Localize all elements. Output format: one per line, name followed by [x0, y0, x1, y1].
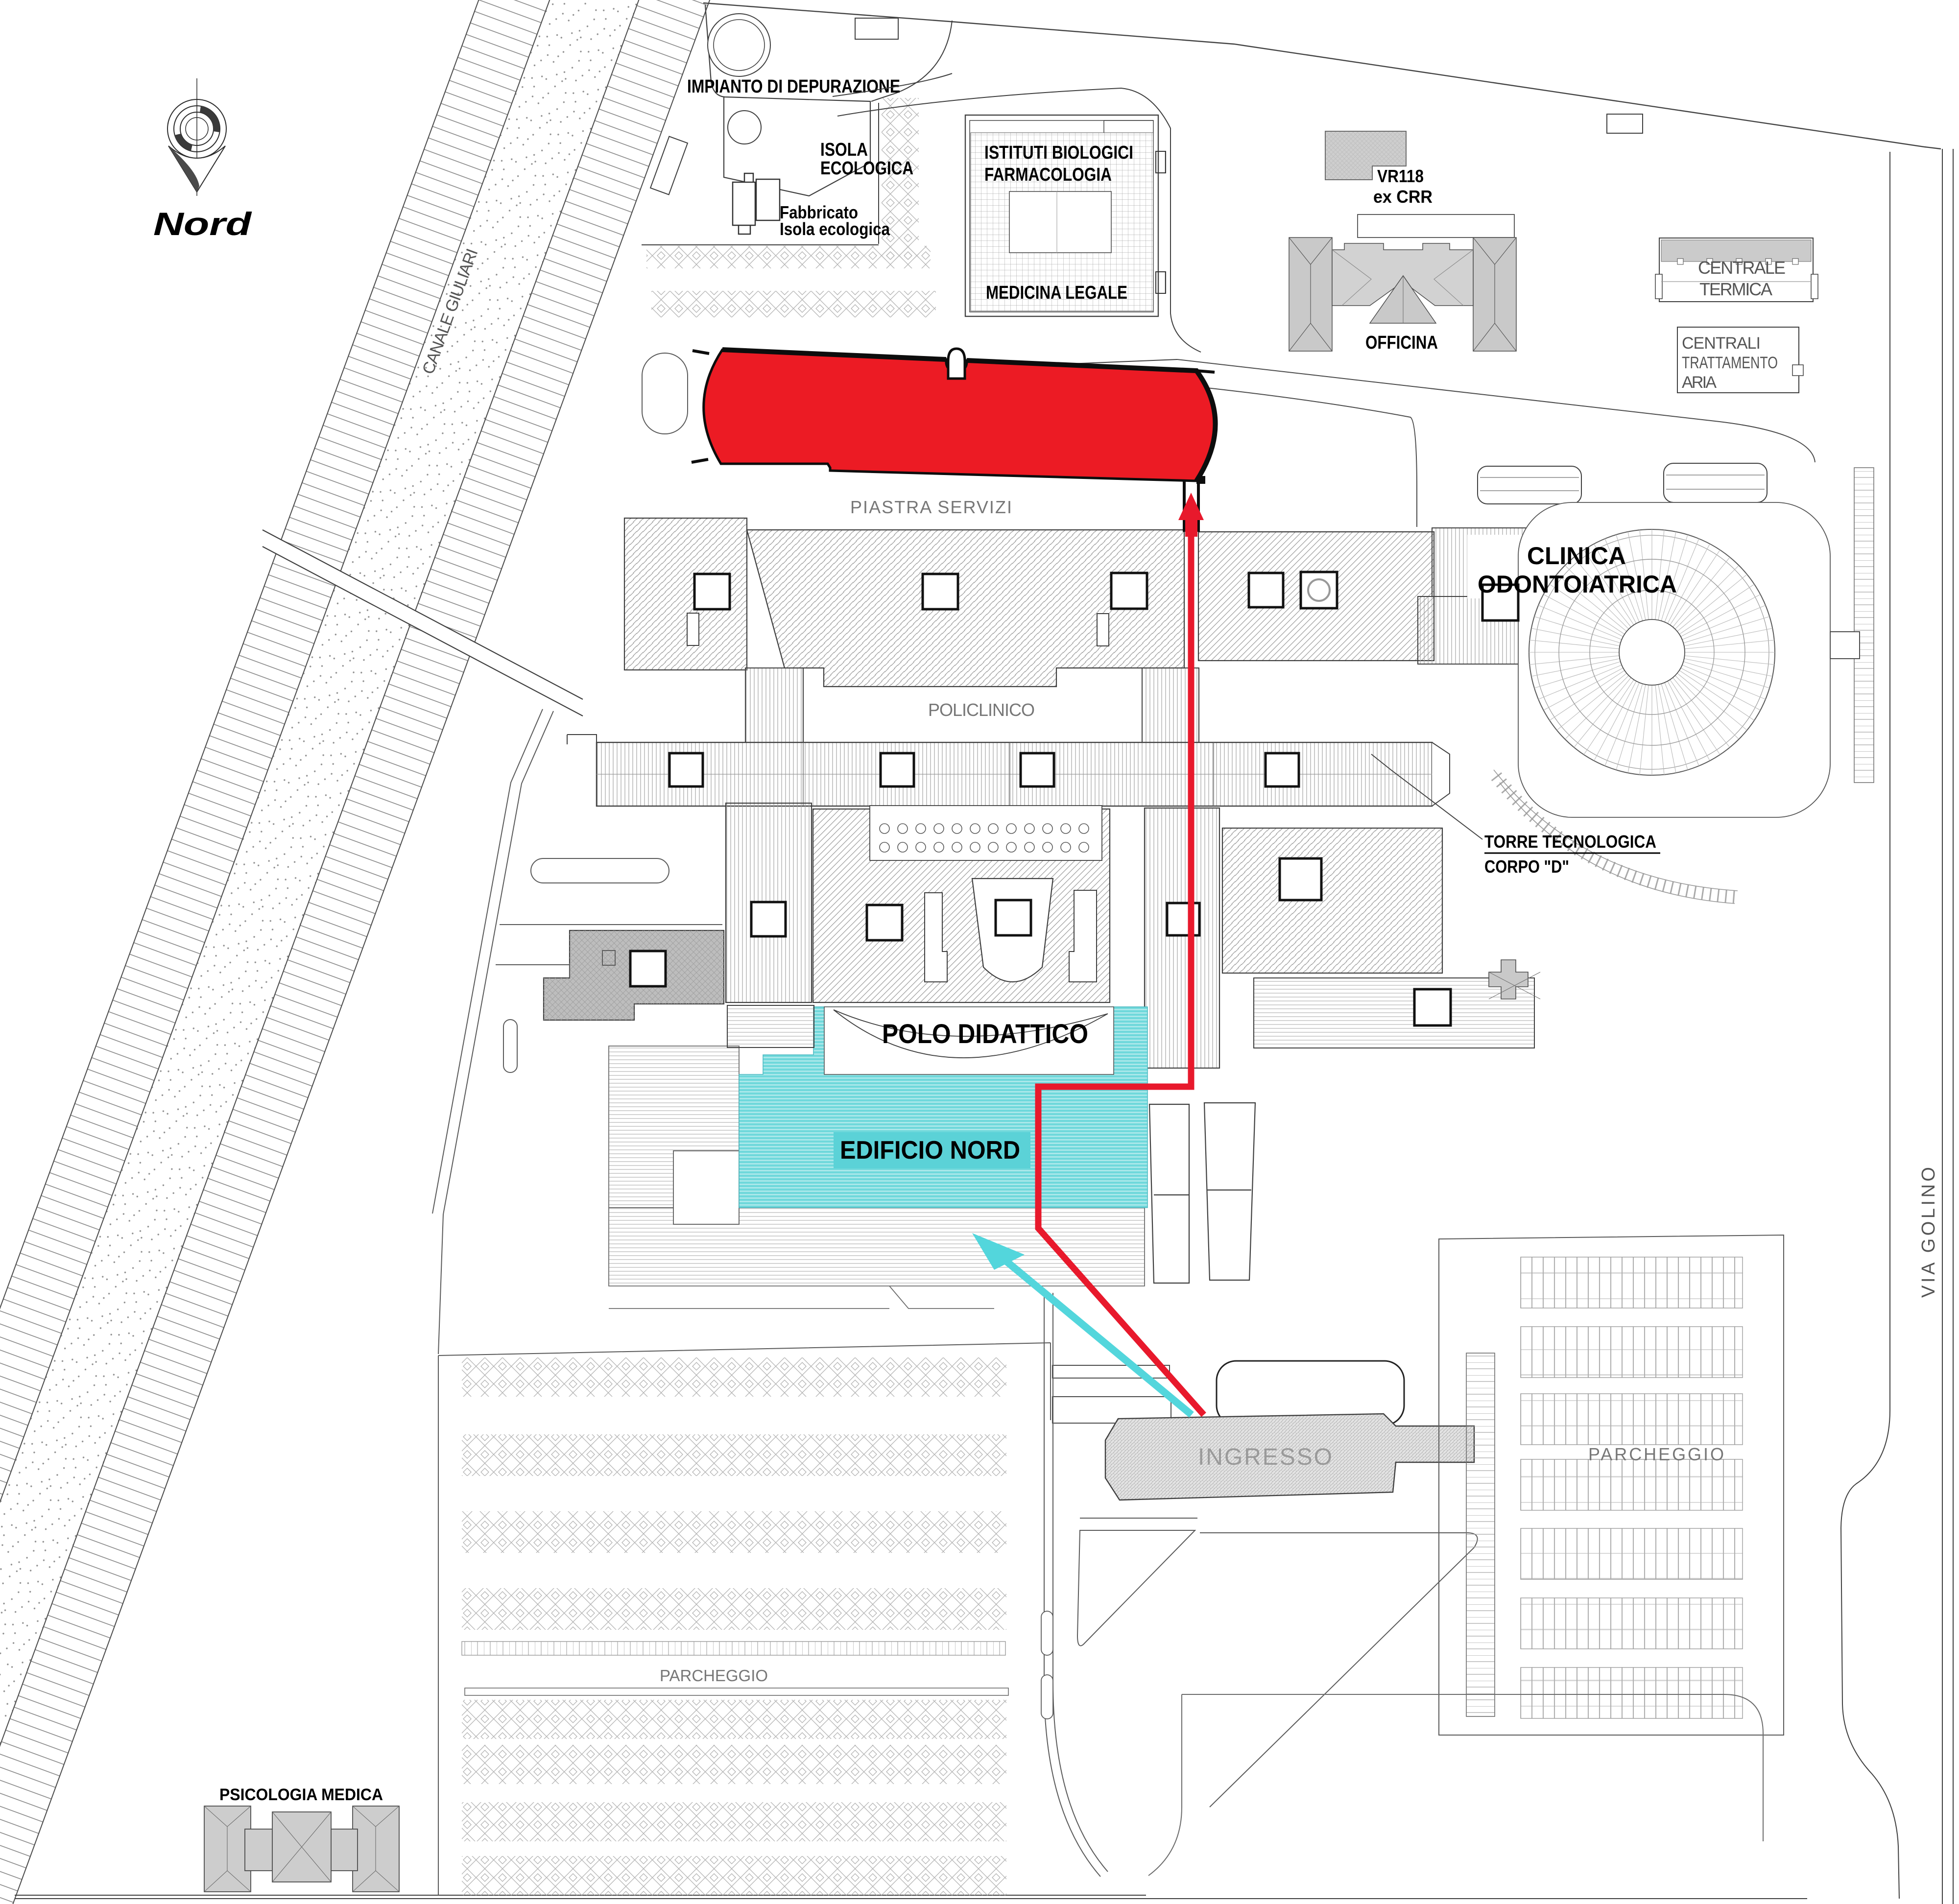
- svg-text:IMPIANTO DI DEPURAZIONE: IMPIANTO DI DEPURAZIONE: [687, 76, 900, 97]
- svg-text:Nord: Nord: [153, 206, 252, 242]
- svg-text:TRATTAMENTO: TRATTAMENTO: [1682, 354, 1778, 372]
- svg-text:POLICLINICO: POLICLINICO: [928, 700, 1035, 720]
- svg-text:CORPO "D": CORPO "D": [1484, 857, 1569, 877]
- svg-text:ODONTOIATRICA: ODONTOIATRICA: [1478, 571, 1677, 598]
- svg-text:ECOLOGICA: ECOLOGICA: [820, 158, 913, 179]
- svg-text:TORRE TECNOLOGICA: TORRE TECNOLOGICA: [1484, 832, 1656, 852]
- svg-text:ex CRR: ex CRR: [1373, 187, 1433, 207]
- svg-text:ISTITUTI BIOLOGICI: ISTITUTI BIOLOGICI: [984, 143, 1133, 163]
- svg-text:FARMACOLOGIA: FARMACOLOGIA: [984, 165, 1112, 185]
- svg-text:Isola ecologica: Isola ecologica: [780, 219, 890, 239]
- svg-text:TERMICA: TERMICA: [1699, 279, 1772, 299]
- svg-text:MEDICINA LEGALE: MEDICINA LEGALE: [986, 283, 1127, 303]
- svg-text:ARIA: ARIA: [1682, 373, 1717, 392]
- svg-text:ISOLA: ISOLA: [820, 140, 868, 160]
- svg-text:CENTRALE: CENTRALE: [1698, 258, 1786, 278]
- svg-text:CLINICA: CLINICA: [1527, 542, 1626, 570]
- svg-text:PSICOLOGIA MEDICA: PSICOLOGIA MEDICA: [219, 1785, 383, 1804]
- svg-text:OFFICINA: OFFICINA: [1365, 333, 1438, 353]
- svg-text:VR118: VR118: [1377, 166, 1424, 186]
- svg-text:PARCHEGGIO: PARCHEGGIO: [1588, 1444, 1724, 1464]
- svg-text:CENTRALI: CENTRALI: [1682, 334, 1761, 353]
- svg-text:INGRESSO: INGRESSO: [1198, 1444, 1332, 1470]
- svg-text:PARCHEGGIO: PARCHEGGIO: [660, 1666, 768, 1685]
- svg-text:POLO DIDATTICO: POLO DIDATTICO: [882, 1018, 1088, 1049]
- svg-text:EDIFICIO NORD: EDIFICIO NORD: [840, 1136, 1020, 1165]
- svg-text:VIA GOLINO: VIA GOLINO: [1918, 1167, 1939, 1298]
